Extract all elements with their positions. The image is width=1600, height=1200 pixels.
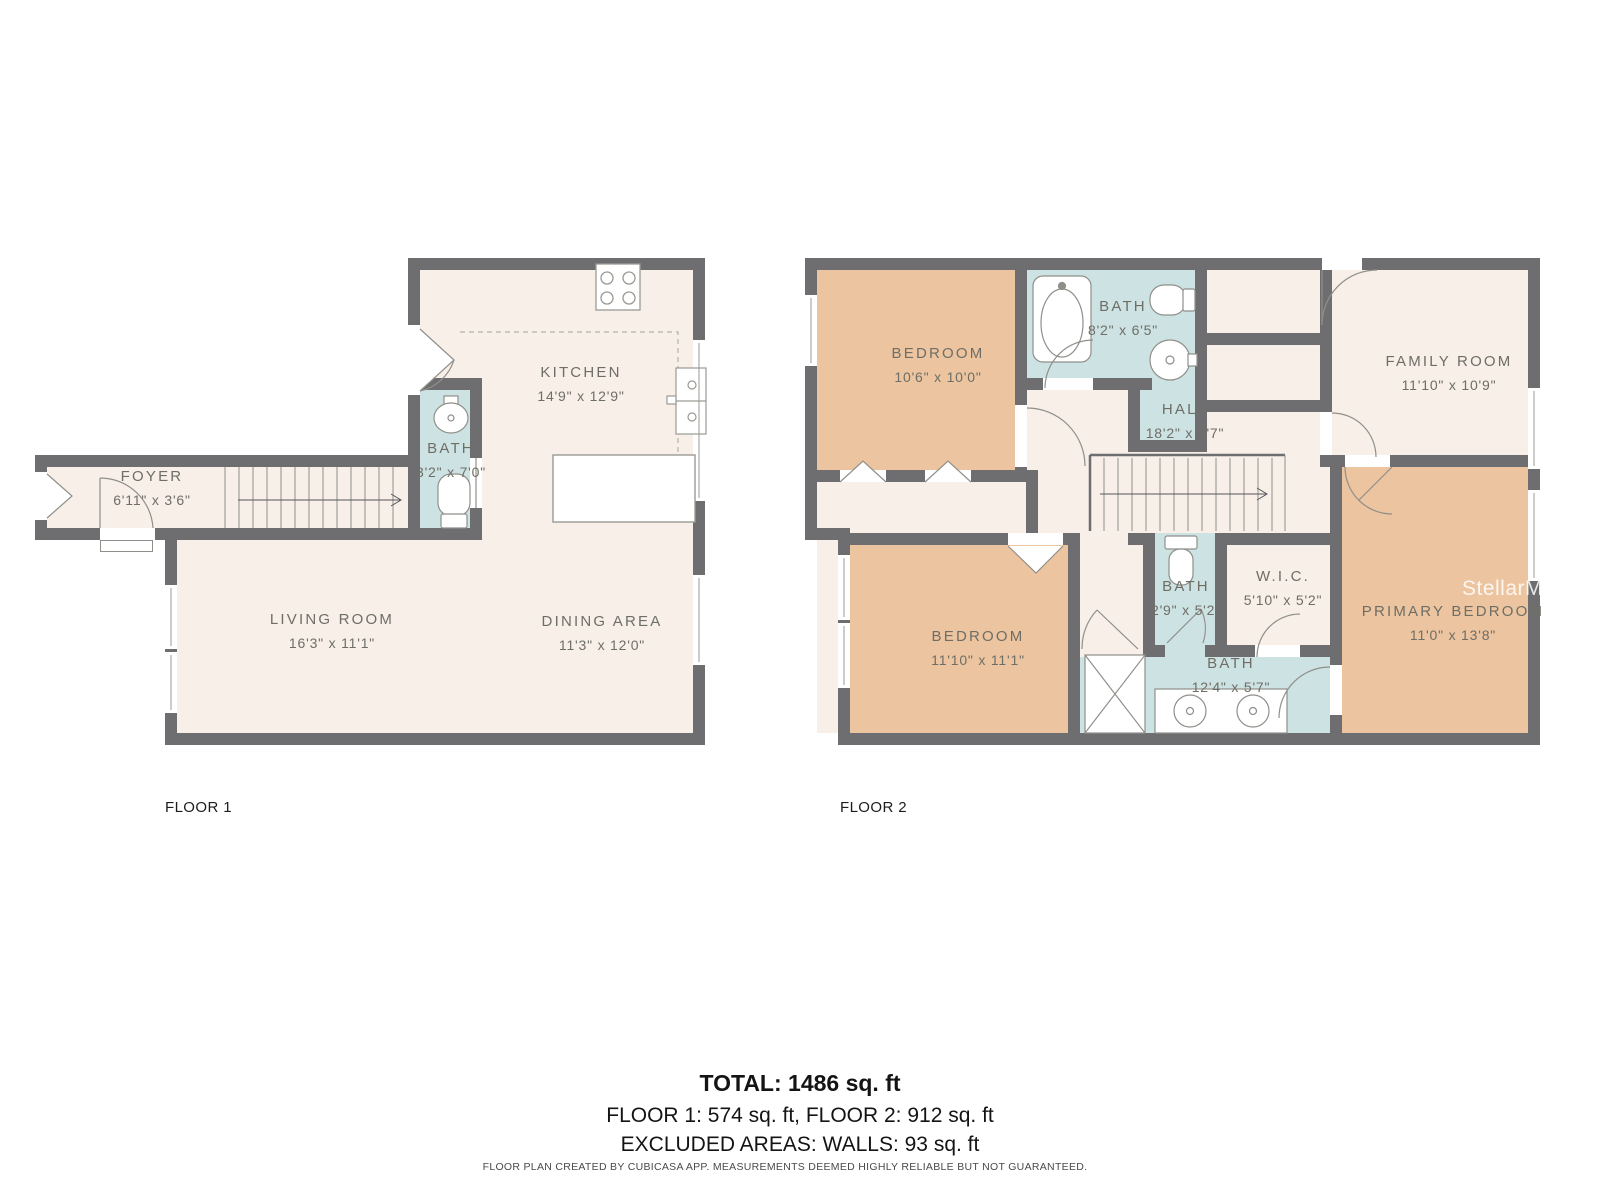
window [1528, 490, 1540, 581]
wall [165, 733, 705, 745]
door-opening [1015, 405, 1027, 467]
door-opening [1008, 533, 1063, 545]
window [838, 623, 850, 688]
room-label-hall: HALL18'2" x 6'7" [1146, 401, 1225, 441]
excluded-areas: EXCLUDED AREAS: WALLS: 93 sq. ft [0, 1133, 1600, 1157]
window [165, 585, 177, 649]
room-label-foyer: FOYER6'11" x 3'6" [113, 468, 191, 508]
foyer-floor [47, 467, 420, 528]
floor-2-caption: FLOOR 2 [840, 799, 907, 816]
floor-1-caption: FLOOR 1 [165, 799, 232, 816]
room-label-bath-small: BATH2'9" x 5'2" [1151, 578, 1221, 618]
door-opening [1320, 412, 1332, 455]
wall [838, 533, 1008, 545]
front-door-slab [100, 540, 153, 552]
area-summary: TOTAL: 1486 sq. ft FLOOR 1: 574 sq. ft, … [0, 1070, 1600, 1157]
floor-areas: FLOOR 1: 574 sq. ft, FLOOR 2: 912 sq. ft [0, 1104, 1600, 1128]
wall [805, 258, 1540, 270]
wall [1068, 545, 1080, 733]
room-label-kitchen: KITCHEN14'9" x 12'9" [537, 364, 624, 404]
window [838, 555, 850, 620]
wall [35, 455, 420, 467]
door-opening [1345, 455, 1390, 467]
closet-door-opening [925, 470, 971, 482]
window [805, 295, 817, 366]
wall [1143, 645, 1165, 657]
room-label-bath-1: BATH3'2" x 7'0" [416, 440, 486, 480]
floor-plan-page: FOYER6'11" x 3'6" KITCHEN14'9" x 12'9" B… [0, 0, 1600, 1200]
room-label-bedroom-bl: BEDROOM11'10" x 11'1" [931, 628, 1025, 668]
window [693, 340, 705, 501]
window [693, 575, 705, 665]
door-opening [1330, 665, 1342, 715]
room-label-wic: W.I.C.5'10" x 5'2" [1244, 568, 1323, 608]
total-area: TOTAL: 1486 sq. ft [0, 1070, 1600, 1097]
room-label-bath-big: BATH12'4" x 5'7" [1192, 655, 1271, 695]
wall [1320, 270, 1332, 400]
wall [408, 258, 705, 270]
toilet-alcove [1155, 533, 1215, 545]
wall [1063, 533, 1080, 545]
room-label-dining-area: DINING AREA11'3" x 12'0" [542, 613, 663, 653]
closet-door-opening [840, 470, 886, 482]
door-opening [1322, 258, 1362, 270]
wall [1207, 400, 1332, 412]
room-label-primary-bedroom: PRIMARY BEDROOM11'0" x 13'8" [1362, 603, 1544, 643]
room-label-family-room: FAMILY ROOM11'10" x 10'9" [1386, 353, 1513, 393]
wall [838, 733, 1540, 745]
door-opening [408, 325, 420, 395]
wall [1128, 533, 1155, 545]
stellar-mls-watermark: StellarMLS [1462, 577, 1570, 601]
room-label-bedroom-tl: BEDROOM10'6" x 10'0" [892, 345, 985, 385]
room-label-bath-top: BATH8'2" x 6'5" [1088, 298, 1158, 338]
wall [1215, 533, 1332, 545]
wall [1207, 333, 1320, 345]
door-opening [35, 472, 47, 520]
wall [693, 258, 705, 745]
window [1528, 388, 1540, 469]
wall [165, 528, 482, 540]
room-label-living-room: LIVING ROOM16'3" x 11'1" [270, 611, 394, 651]
window [165, 652, 177, 713]
door-opening [100, 528, 155, 540]
door-opening [1043, 378, 1093, 390]
disclaimer: FLOOR PLAN CREATED BY CUBICASA APP. MEAS… [0, 1161, 1570, 1173]
